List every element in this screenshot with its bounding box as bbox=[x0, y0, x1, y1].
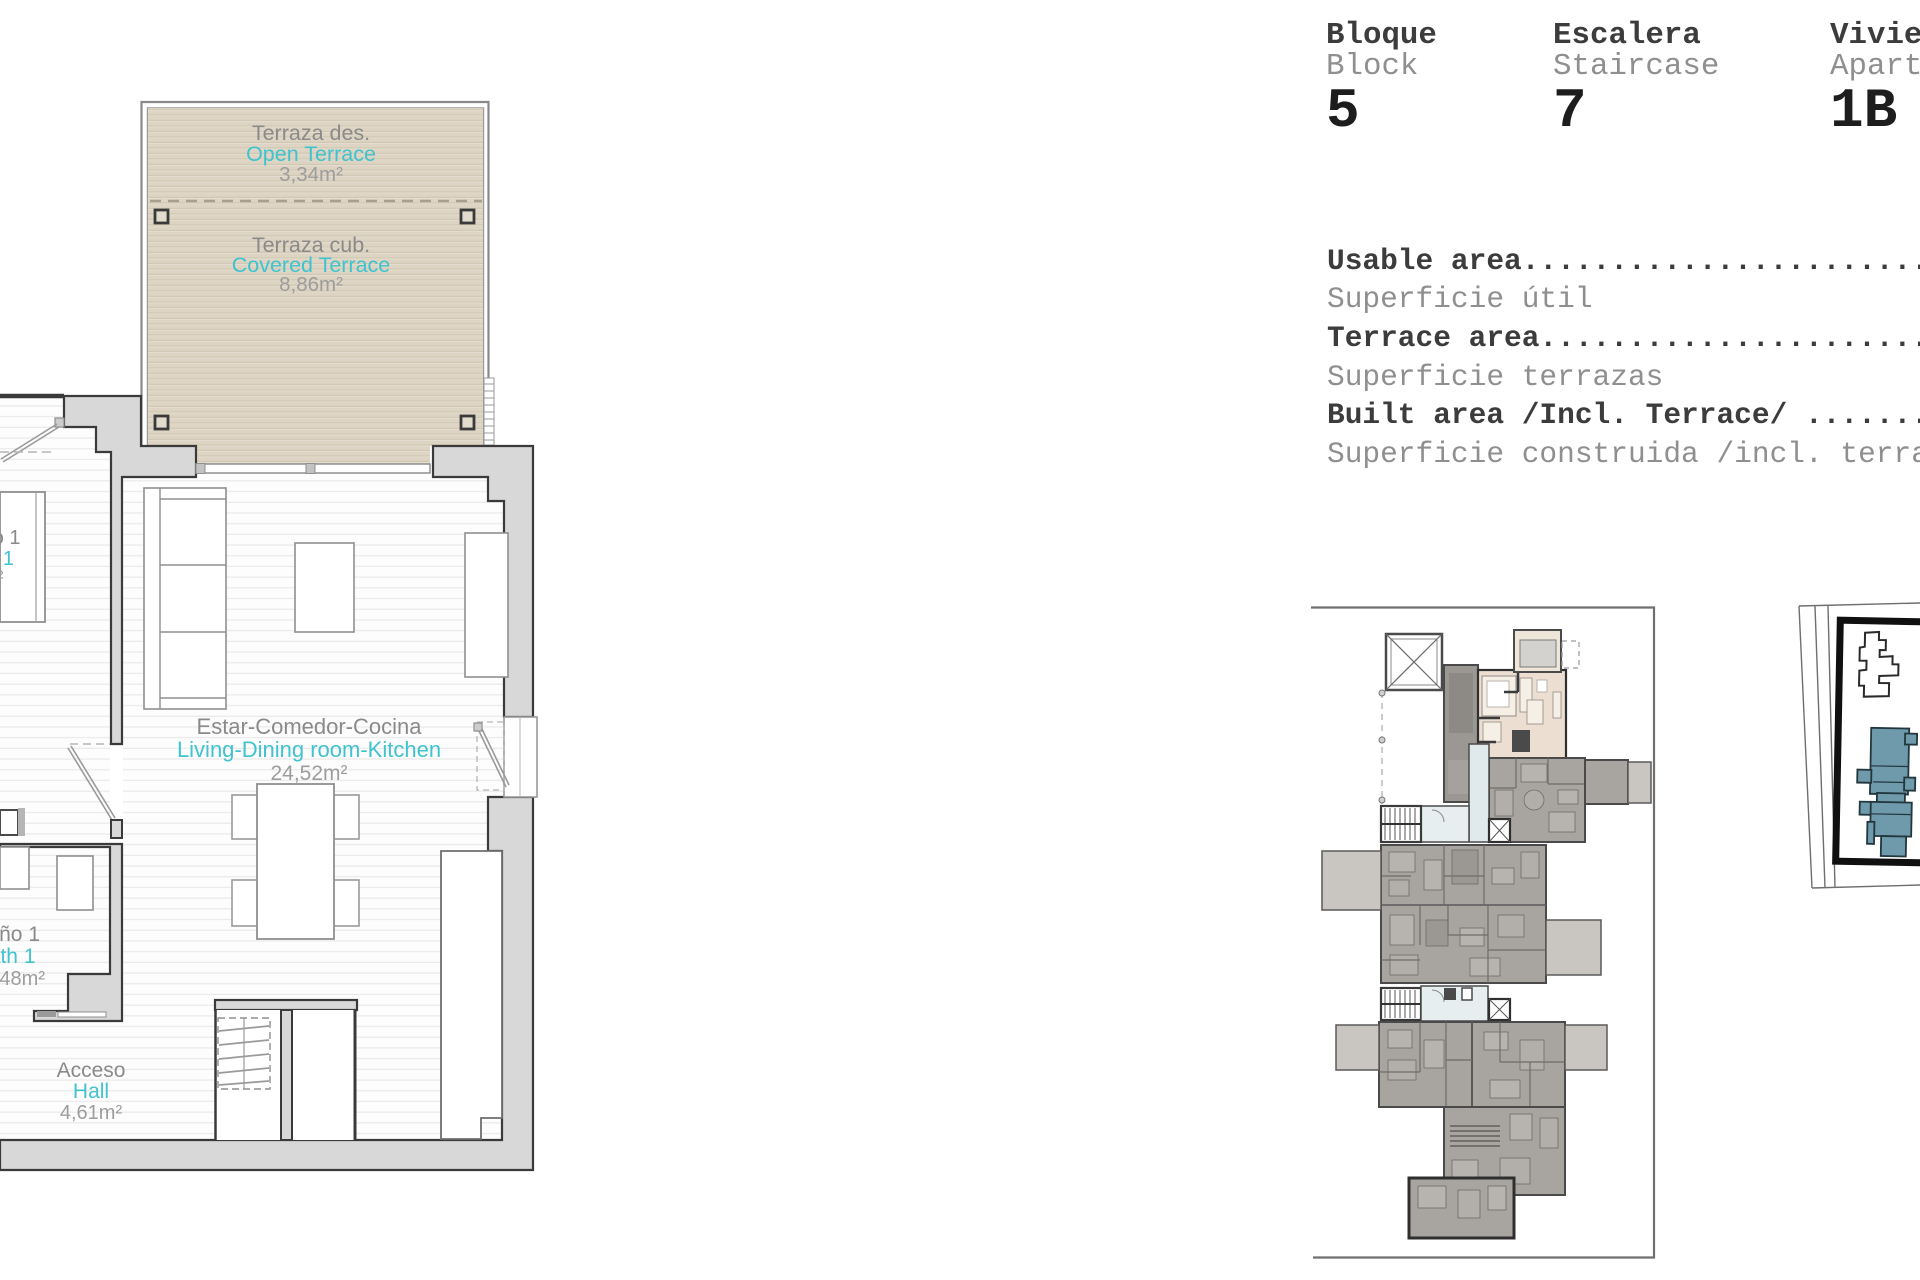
svg-text:Baño 1: Baño 1 bbox=[0, 923, 40, 946]
svg-text:Escalera: Escalera bbox=[1553, 18, 1701, 53]
svg-text:Living-Dining room-Kitchen: Living-Dining room-Kitchen bbox=[177, 737, 441, 762]
svg-text:Superficie construida /incl. t: Superficie construida /incl. terrazas/ bbox=[1327, 437, 1920, 471]
svg-text:Bloque: Bloque bbox=[1326, 18, 1437, 53]
svg-text:Terrace area..................: Terrace area.......................... bbox=[1327, 321, 1920, 355]
svg-text:9,86m²: 9,86m² bbox=[0, 567, 4, 589]
svg-text:7: 7 bbox=[1553, 79, 1587, 143]
svg-text:Bath 1: Bath 1 bbox=[0, 945, 36, 968]
svg-text:Usable area...................: Usable area........................... bbox=[1327, 244, 1920, 278]
svg-text:3,48m²: 3,48m² bbox=[0, 968, 45, 990]
svg-text:Vivienda: Vivienda bbox=[1830, 18, 1920, 53]
svg-text:Hall: Hall bbox=[73, 1080, 109, 1103]
svg-text:Acceso: Acceso bbox=[57, 1059, 126, 1082]
svg-text:Built area /Incl. Terrace/ ...: Built area /Incl. Terrace/ ........... bbox=[1327, 398, 1920, 432]
svg-text:1B: 1B bbox=[1830, 79, 1897, 143]
svg-text:8,86m²: 8,86m² bbox=[279, 273, 343, 296]
svg-text:4,61m²: 4,61m² bbox=[60, 1102, 123, 1124]
svg-text:24,52m²: 24,52m² bbox=[270, 762, 347, 785]
svg-text:3,34m²: 3,34m² bbox=[279, 163, 343, 186]
svg-text:Dormitorio 1: Dormitorio 1 bbox=[0, 527, 21, 549]
svg-text:5: 5 bbox=[1326, 79, 1360, 143]
svg-text:Superficie terrazas: Superficie terrazas bbox=[1327, 360, 1663, 394]
svg-text:Superficie útil: Superficie útil bbox=[1327, 282, 1593, 316]
svg-text:Estar-Comedor-Cocina: Estar-Comedor-Cocina bbox=[197, 714, 423, 739]
